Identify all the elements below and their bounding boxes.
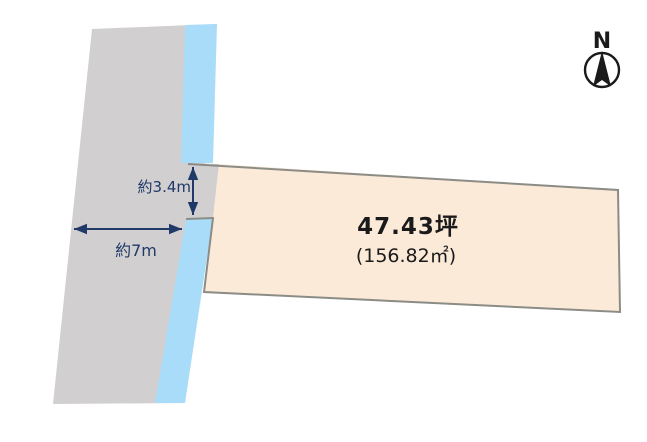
gutter-strip-upper — [181, 24, 217, 163]
lot-diagram-canvas: 約3.4m 約7m 47.43坪 (156.82㎡) N — [0, 0, 647, 442]
north-compass-icon: N — [585, 29, 619, 87]
north-label: N — [593, 29, 611, 54]
frontage-dimension-label: 約3.4m — [138, 178, 191, 196]
land-plot-diagram: 約3.4m 約7m 47.43坪 (156.82㎡) N — [0, 0, 647, 442]
compass-needle-icon — [593, 51, 611, 87]
parcel-area-sqm-label: (156.82㎡) — [356, 244, 456, 267]
parcel-area-tsubo-label: 47.43坪 — [357, 214, 459, 240]
road-width-dimension-label: 約7m — [115, 241, 157, 260]
